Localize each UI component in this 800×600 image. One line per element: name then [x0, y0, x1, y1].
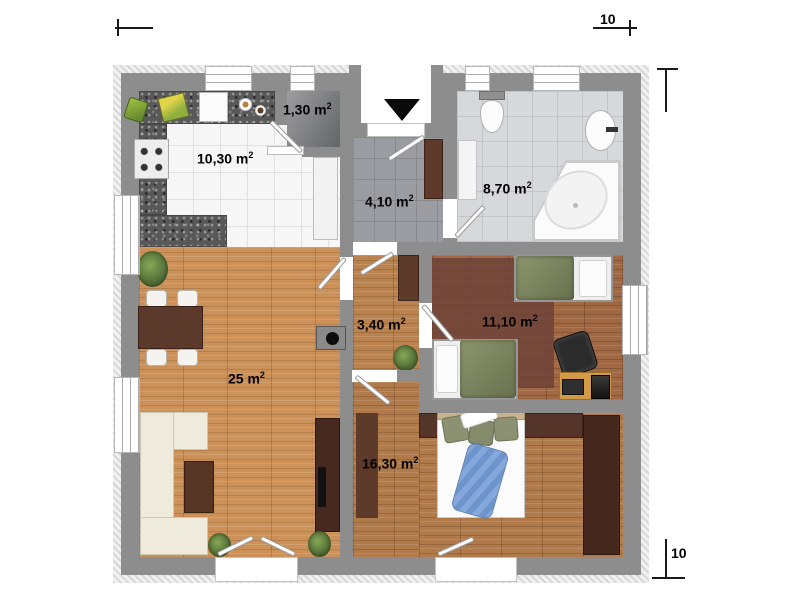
room-label-bedroom: 11,10 m2: [482, 313, 538, 330]
dimension-tick: [657, 68, 678, 70]
dimension-label-right: 10: [671, 545, 687, 561]
window: [114, 377, 140, 453]
toilet-tank: [479, 91, 505, 100]
plate: [255, 105, 266, 116]
chimney: [316, 326, 346, 350]
bed-pillow-green: [493, 416, 519, 442]
bed-blanket: [460, 340, 516, 398]
dimension-line: [115, 27, 153, 29]
dimension-tick: [117, 19, 119, 36]
dining-table: [138, 306, 203, 349]
wall-living-corridor: [340, 255, 353, 557]
dimension-tick: [629, 20, 631, 36]
wall-pantry-bottom: [302, 147, 340, 157]
dining-chair: [146, 349, 167, 366]
window: [533, 66, 580, 91]
balcony-door-threshold: [435, 557, 517, 582]
bathtub-drain: [573, 203, 578, 208]
bed-pillow: [579, 260, 607, 297]
room-label-kitchen: 10,30 m2: [197, 150, 253, 167]
bathroom-cabinet: [458, 140, 477, 200]
dimension-line: [665, 69, 667, 112]
coffee-table: [184, 461, 214, 513]
dimension-tick: [652, 577, 685, 579]
desk-pad: [562, 379, 584, 395]
dimension-label-top: 10: [600, 11, 616, 27]
kitchen-sink: [199, 92, 228, 122]
bed-blanket: [516, 256, 574, 300]
fridge-cabinet: [313, 157, 338, 240]
window: [622, 285, 648, 355]
balcony-door-threshold: [215, 557, 298, 582]
wall-bedrooms-horizontal: [419, 400, 623, 413]
bed-pillow: [436, 345, 458, 393]
dining-chair: [177, 290, 198, 307]
entrance-arrow-icon: [384, 99, 420, 121]
laptop: [591, 375, 610, 399]
sofa: [140, 517, 208, 555]
floor-plan: 10 10 10,30 m2 1,30 m2 4,10 m2 8,70 m2 2…: [0, 0, 800, 600]
window: [465, 66, 490, 91]
room-label-bathroom: 8,70 m2: [483, 180, 532, 197]
wardrobe: [583, 415, 620, 555]
dining-chair: [146, 290, 167, 307]
room-label-master-bedroom: 16,30 m2: [362, 455, 418, 472]
dimension-line: [665, 539, 667, 579]
dining-chair: [177, 349, 198, 366]
stove: [134, 139, 169, 179]
kitchen-counter-corner: [139, 215, 227, 247]
room-label-living-room: 25 m2: [228, 370, 265, 387]
window: [205, 66, 252, 91]
potted-plant: [137, 251, 168, 287]
entrance-door-threshold: [367, 123, 425, 137]
plate: [239, 98, 252, 111]
tv: [318, 467, 326, 507]
room-label-pantry: 1,30 m2: [283, 101, 332, 118]
corridor-cabinet: [398, 255, 419, 301]
window: [114, 195, 140, 275]
potted-plant: [393, 345, 418, 371]
potted-plant: [308, 531, 331, 557]
chimney-flue: [326, 332, 339, 345]
window: [290, 66, 315, 91]
room-label-entrance-hall: 4,10 m2: [365, 193, 414, 210]
basin-faucet: [606, 127, 618, 132]
hall-cabinet: [424, 139, 443, 199]
room-label-corridor: 3,40 m2: [357, 316, 406, 333]
